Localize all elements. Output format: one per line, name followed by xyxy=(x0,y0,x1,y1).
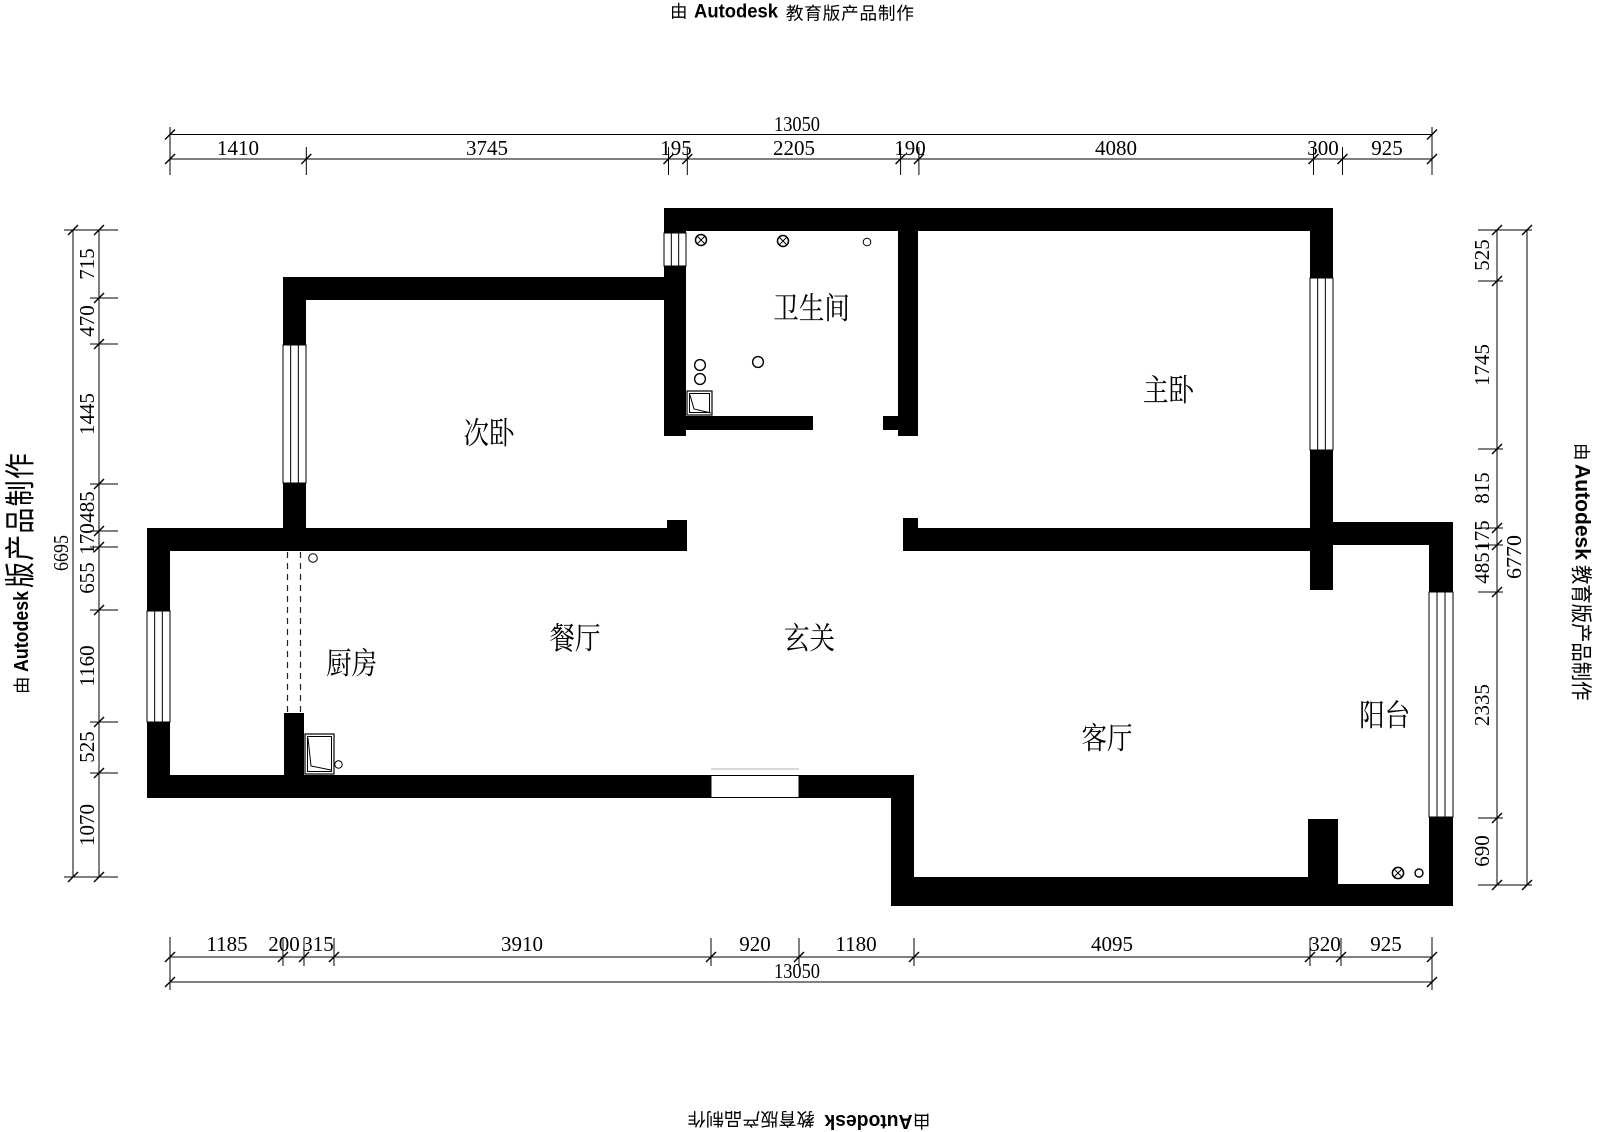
svg-text:170: 170 xyxy=(75,523,99,555)
svg-text:13050: 13050 xyxy=(774,112,820,136)
svg-text:320: 320 xyxy=(1309,932,1341,956)
svg-text:2205: 2205 xyxy=(773,136,815,160)
svg-text:13050: 13050 xyxy=(774,959,820,983)
svg-text:300: 300 xyxy=(1307,136,1339,160)
svg-text:690: 690 xyxy=(1470,835,1494,867)
svg-text:3745: 3745 xyxy=(466,136,508,160)
svg-text:1185: 1185 xyxy=(206,932,247,956)
svg-text:2335: 2335 xyxy=(1470,684,1494,726)
svg-text:1445: 1445 xyxy=(75,393,99,435)
svg-text:925: 925 xyxy=(1371,136,1403,160)
svg-text:4080: 4080 xyxy=(1095,136,1137,160)
svg-text:1160: 1160 xyxy=(75,645,99,686)
svg-text:4095: 4095 xyxy=(1091,932,1133,956)
svg-text:1745: 1745 xyxy=(1470,344,1494,386)
svg-text:Autodesk: Autodesk xyxy=(694,2,778,23)
svg-text:Autodesk: Autodesk xyxy=(824,1110,913,1132)
svg-text:655: 655 xyxy=(75,562,99,594)
svg-text:190: 190 xyxy=(894,136,926,160)
svg-text:195: 195 xyxy=(660,136,692,160)
svg-text:6695: 6695 xyxy=(49,535,73,571)
svg-text:470: 470 xyxy=(75,305,99,337)
svg-text:6770: 6770 xyxy=(1502,535,1526,579)
svg-text:920: 920 xyxy=(739,932,771,956)
svg-text:925: 925 xyxy=(1370,932,1402,956)
svg-text:1180: 1180 xyxy=(835,932,876,956)
svg-text:715: 715 xyxy=(75,248,99,280)
svg-text:Autodesk: Autodesk xyxy=(1571,464,1594,560)
svg-text:815: 815 xyxy=(1470,472,1494,504)
svg-text:200: 200 xyxy=(268,932,300,956)
svg-text:315: 315 xyxy=(302,932,334,956)
svg-text:525: 525 xyxy=(75,731,99,763)
svg-text:3910: 3910 xyxy=(501,932,543,956)
svg-text:175: 175 xyxy=(1470,520,1494,552)
svg-text:1410: 1410 xyxy=(217,136,259,160)
svg-text:1070: 1070 xyxy=(75,804,99,846)
svg-text:485: 485 xyxy=(1470,552,1494,584)
svg-text:485: 485 xyxy=(75,491,99,523)
svg-text:525: 525 xyxy=(1470,239,1494,271)
svg-text:Autodesk: Autodesk xyxy=(11,590,33,672)
